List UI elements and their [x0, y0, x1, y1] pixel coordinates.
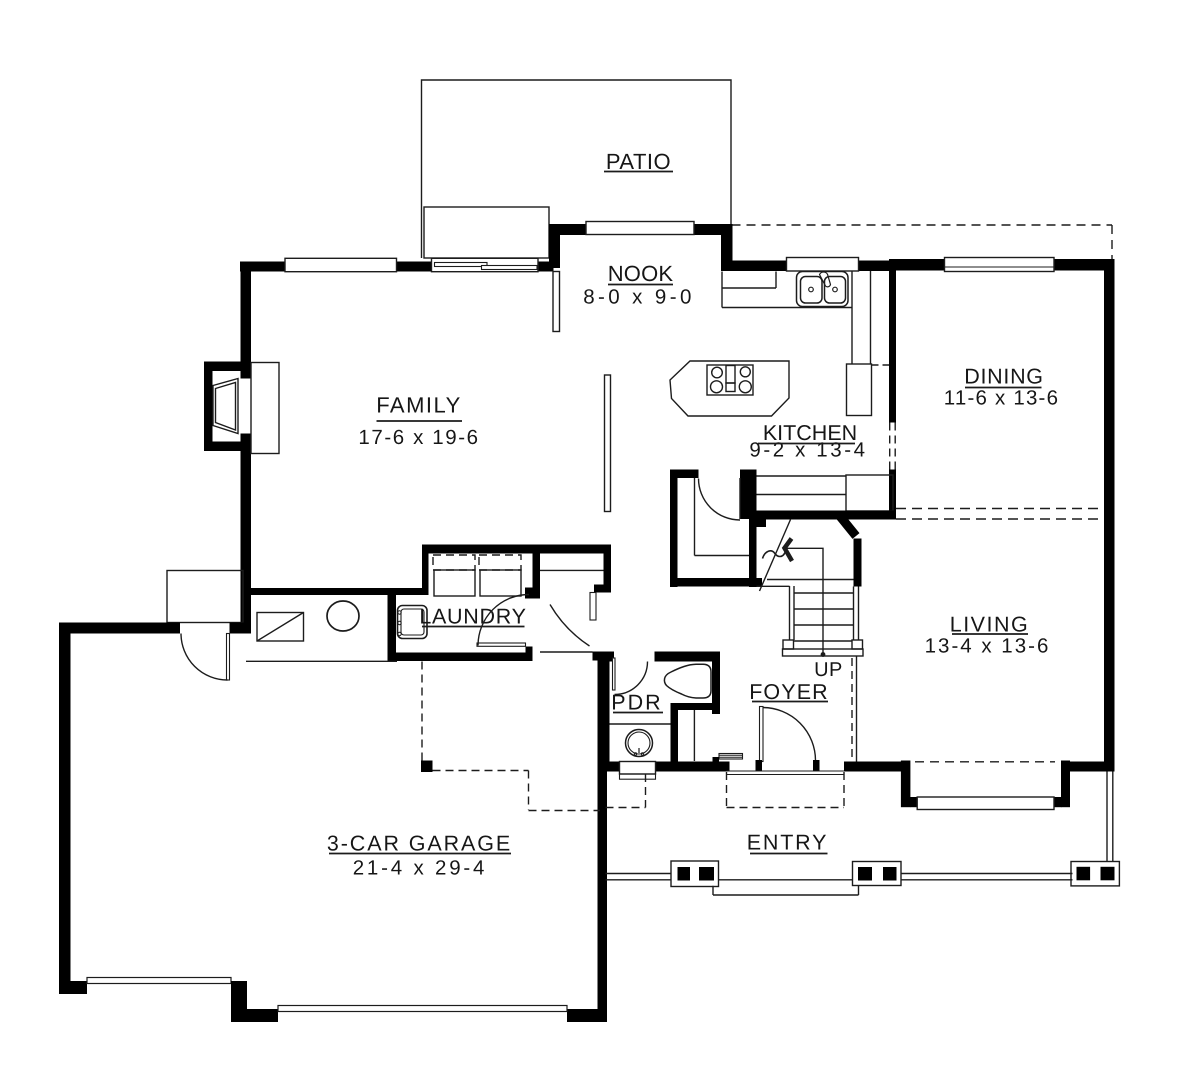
svg-text:8-0 x 9-0: 8-0 x 9-0	[583, 286, 695, 309]
svg-text:17-6 x 19-6: 17-6 x 19-6	[358, 426, 479, 449]
svg-text:NOOK: NOOK	[608, 261, 674, 286]
svg-text:UP: UP	[814, 659, 843, 681]
svg-text:9-2 x 13-4: 9-2 x 13-4	[749, 439, 867, 462]
svg-text:13-4 x 13-6: 13-4 x 13-6	[925, 635, 1051, 658]
svg-text:PATIO: PATIO	[606, 149, 671, 174]
svg-text:ENTRY: ENTRY	[747, 831, 828, 855]
svg-text:DINING: DINING	[964, 365, 1043, 389]
svg-text:LAUNDRY: LAUNDRY	[419, 605, 526, 629]
svg-text:FOYER: FOYER	[749, 680, 829, 704]
svg-text:21-4 x 29-4: 21-4 x 29-4	[353, 857, 488, 880]
svg-text:LIVING: LIVING	[950, 613, 1030, 637]
svg-text:3-CAR GARAGE: 3-CAR GARAGE	[327, 832, 512, 856]
svg-text:FAMILY: FAMILY	[376, 393, 462, 418]
svg-text:11-6 x 13-6: 11-6 x 13-6	[944, 387, 1059, 410]
svg-text:PDR: PDR	[611, 691, 662, 715]
